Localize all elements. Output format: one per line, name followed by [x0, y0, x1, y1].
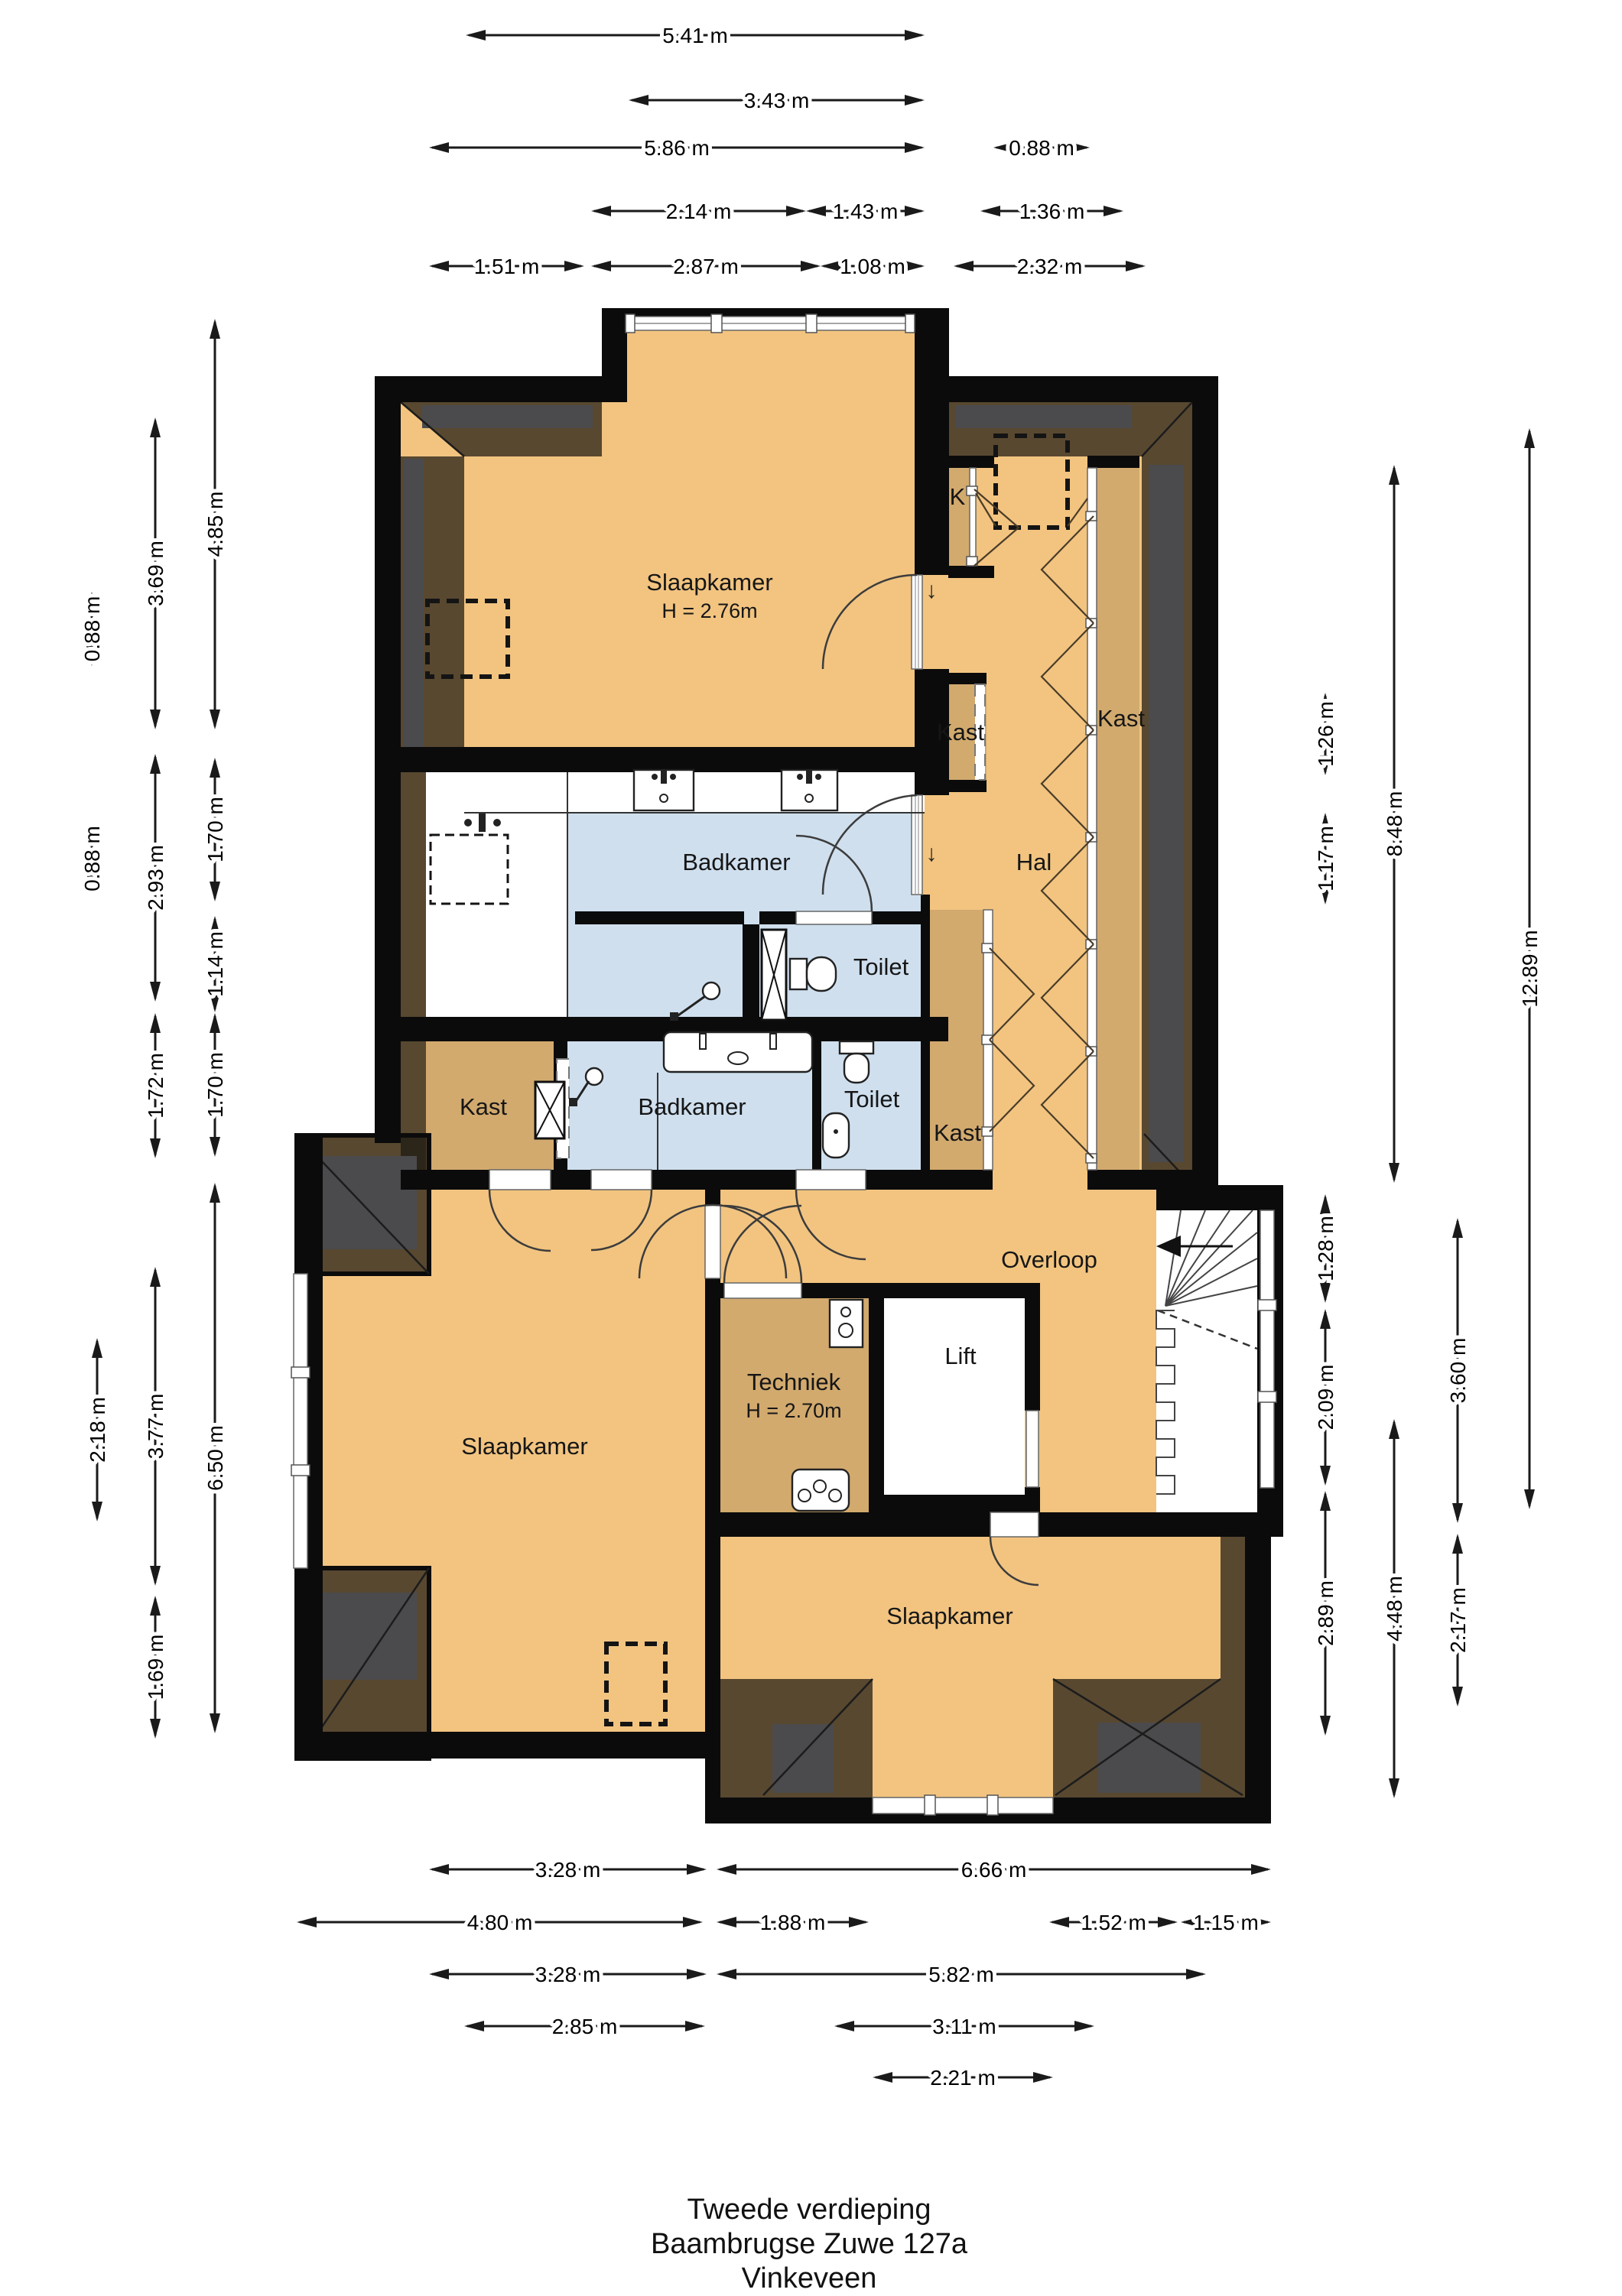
toilet-lower: [840, 1041, 873, 1083]
dimension-label: 1.52 m: [1081, 1911, 1146, 1934]
floor-plan: SlaapkamerH = 2.76mKKastKastBadkamerHalT…: [0, 0, 1622, 2294]
dimension-label: 4.85 m: [203, 492, 227, 557]
dimension-label: 3.43 m: [744, 89, 810, 112]
title-block: Tweede verdieping Baambrugse Zuwe 127a V…: [651, 2193, 967, 2296]
dimension: 3.28 m: [429, 1858, 707, 1882]
dimension: 2.89 m: [1314, 1491, 1338, 1736]
dimension: 1.43 m: [806, 200, 925, 223]
dimension: 3.11 m: [834, 2015, 1094, 2038]
room-label-kast-middle: Kast: [937, 719, 984, 745]
dimension: 8.48 m: [1383, 465, 1406, 1183]
dimension: 3.69 m: [144, 417, 167, 729]
dimension-label: 1.14 m: [203, 931, 227, 997]
room-label-kast-left: Kast: [460, 1093, 507, 1120]
dimension: 2.09 m: [1314, 1309, 1338, 1486]
room-label-badkamer-bottom: Badkamer: [638, 1093, 746, 1120]
dimension-label: 5.86 m: [644, 136, 710, 160]
dimension: 0.88 m: [80, 592, 104, 666]
svg-text:Kast: Kast: [1097, 705, 1145, 732]
bidet: [823, 1113, 849, 1158]
svg-text:Kast: Kast: [937, 719, 984, 745]
dimension: 1.88 m: [717, 1911, 869, 1934]
room-label-toilet-top: Toilet: [853, 953, 909, 980]
room-label-slaapkamer-bottomright: Slaapkamer: [886, 1603, 1013, 1629]
sink-counter-right: [782, 770, 837, 810]
dimension-label: 4.80 m: [467, 1911, 533, 1934]
room-label-badkamer-top: Badkamer: [682, 849, 790, 875]
room-label-hal: Hal: [1016, 849, 1052, 875]
dimension: 2.18 m: [86, 1338, 109, 1521]
dimension-label: 0.88 m: [80, 826, 104, 891]
dimension-label: 1.17 m: [1314, 826, 1338, 891]
dimension: 2.14 m: [591, 200, 806, 223]
dimension: 3.77 m: [144, 1267, 167, 1586]
dimension: 3.43 m: [629, 89, 925, 112]
dimension-label: 1.72 m: [144, 1053, 167, 1119]
dimension-label: 1.88 m: [760, 1911, 826, 1934]
title-address: Baambrugse Zuwe 127a: [651, 2227, 967, 2262]
svg-text:Kast: Kast: [460, 1093, 507, 1120]
dimension-label: 2.89 m: [1314, 1580, 1338, 1646]
dimension: 1.51 m: [429, 255, 584, 278]
dimension-label: 3.77 m: [144, 1394, 167, 1460]
dimension-label: 5.82 m: [928, 1963, 994, 1986]
dimension: 2.21 m: [873, 2066, 1053, 2090]
svg-text:Slaapkamer: Slaapkamer: [886, 1603, 1013, 1629]
dimension: 1.15 m: [1181, 1911, 1271, 1934]
room-label-toilet-bottom: Toilet: [844, 1086, 900, 1112]
room-label-kast-right: Kast: [934, 1119, 981, 1146]
title-city: Vinkeveen: [651, 2262, 967, 2296]
dimension-label: 1.36 m: [1019, 200, 1085, 223]
dimension-label: 3.60 m: [1446, 1338, 1470, 1404]
dimension-label: 1.70 m: [203, 797, 227, 862]
dimension: 2.87 m: [591, 255, 821, 278]
dimension-label: 2.18 m: [86, 1397, 109, 1463]
dimension: 1.36 m: [980, 200, 1123, 223]
dimension-label: 1.26 m: [1314, 701, 1338, 767]
dimension-label: 5.41 m: [662, 24, 728, 47]
dimension: 12.89 m: [1518, 428, 1542, 1509]
dimension: 1.69 m: [144, 1596, 167, 1739]
dimension: 0.88 m: [80, 824, 104, 893]
dimension-label: 8.48 m: [1383, 791, 1406, 857]
dimension: 2.32 m: [954, 255, 1146, 278]
stair-flow-arrow: ↓: [926, 841, 938, 866]
dimension-label: 2.17 m: [1446, 1587, 1470, 1653]
dimension: 5.41 m: [466, 24, 925, 47]
dimension: 3.28 m: [429, 1963, 707, 1986]
dimension-label: 2.09 m: [1314, 1365, 1338, 1431]
dimension: 6.66 m: [717, 1858, 1271, 1882]
dimension-label: 3.28 m: [535, 1858, 601, 1882]
dimension-label: 3.28 m: [535, 1963, 601, 1986]
svg-text:Slaapkamer: Slaapkamer: [461, 1433, 587, 1460]
dimension-label: 1.15 m: [1193, 1911, 1259, 1934]
dimension-label: 6.50 m: [203, 1425, 227, 1491]
toilet-upper: [790, 957, 836, 991]
room-label-slaapkamer-bottomleft: Slaapkamer: [461, 1433, 587, 1460]
svg-text:Slaapkamer: Slaapkamer: [646, 569, 772, 596]
boiler: [792, 1470, 849, 1511]
svg-text:H = 2.70m: H = 2.70m: [746, 1399, 841, 1422]
dimension-label: 2.85 m: [552, 2015, 618, 2038]
dimension-label: 3.11 m: [932, 2015, 996, 2038]
dimension-label: 2.32 m: [1017, 255, 1083, 278]
stair-flow-arrow: ↓: [926, 578, 938, 603]
room-label-overloop: Overloop: [1001, 1246, 1097, 1273]
dimension: 4.80 m: [297, 1911, 703, 1934]
dimension: 1.52 m: [1049, 1911, 1178, 1934]
svg-text:Kast: Kast: [934, 1119, 981, 1146]
dimension: 5.86 m: [429, 136, 925, 160]
dimension: 6.50 m: [203, 1183, 227, 1733]
svg-text:Overloop: Overloop: [1001, 1246, 1097, 1273]
dimension: 2.93 m: [144, 754, 167, 1002]
dimension-label: 6.66 m: [961, 1858, 1027, 1882]
dimension-label: 1.28 m: [1314, 1216, 1338, 1281]
room-label-kast-wardrobe: Kast: [1097, 705, 1145, 732]
svg-text:K: K: [950, 483, 966, 510]
dimension-label: 2.87 m: [673, 255, 739, 278]
dimension-label: 0.88 m: [1009, 136, 1074, 160]
dimension: 1.70 m: [203, 758, 227, 901]
dimension: 1.17 m: [1314, 813, 1338, 904]
dimension: 1.14 m: [203, 916, 227, 1012]
dimension: 1.28 m: [1314, 1194, 1338, 1303]
room-label-lift: Lift: [944, 1343, 977, 1369]
svg-text:Techniek: Techniek: [747, 1369, 841, 1395]
dimension: 1.08 m: [821, 255, 925, 278]
dimension: 2.17 m: [1446, 1534, 1470, 1707]
svg-text:Toilet: Toilet: [844, 1086, 900, 1112]
room-label-k-closet: K: [950, 483, 966, 510]
dimension: 4.48 m: [1383, 1419, 1406, 1798]
dimension-label: 1.43 m: [833, 200, 899, 223]
svg-text:Badkamer: Badkamer: [638, 1093, 746, 1120]
techniek-wall-unit: [830, 1300, 863, 1347]
svg-text:Badkamer: Badkamer: [682, 849, 790, 875]
svg-text:Lift: Lift: [944, 1343, 977, 1369]
dimension-label: 1.08 m: [840, 255, 905, 278]
dimension-label: 1.69 m: [144, 1635, 167, 1700]
dimension-label: 4.48 m: [1383, 1576, 1406, 1642]
dimension: 5.82 m: [717, 1963, 1206, 1986]
dimension: 1.72 m: [144, 1013, 167, 1158]
dimension: 3.60 m: [1446, 1218, 1470, 1523]
dimension: 2.85 m: [464, 2015, 705, 2038]
double-sink: [664, 1032, 812, 1072]
svg-text:Toilet: Toilet: [853, 953, 909, 980]
dimension-label: 2.21 m: [930, 2066, 996, 2090]
title-floor: Tweede verdieping: [651, 2193, 967, 2227]
dimension-label: 2.93 m: [144, 845, 167, 911]
sink-counter-left: [634, 770, 694, 810]
dimension: 4.85 m: [203, 319, 227, 729]
dimension: 1.26 m: [1314, 693, 1338, 775]
dimension-label: 1.70 m: [203, 1052, 227, 1118]
dimension-label: 2.14 m: [666, 200, 732, 223]
svg-text:Hal: Hal: [1016, 849, 1052, 875]
dimension-label: 12.89 m: [1518, 930, 1542, 1007]
dimension-label: 3.69 m: [144, 541, 167, 606]
dimension: 1.70 m: [203, 1013, 227, 1157]
dimension: 0.88 m: [993, 136, 1090, 160]
dimension-label: 0.88 m: [80, 596, 104, 662]
dimension-label: 1.51 m: [474, 255, 540, 278]
svg-text:H = 2.76m: H = 2.76m: [661, 599, 757, 622]
